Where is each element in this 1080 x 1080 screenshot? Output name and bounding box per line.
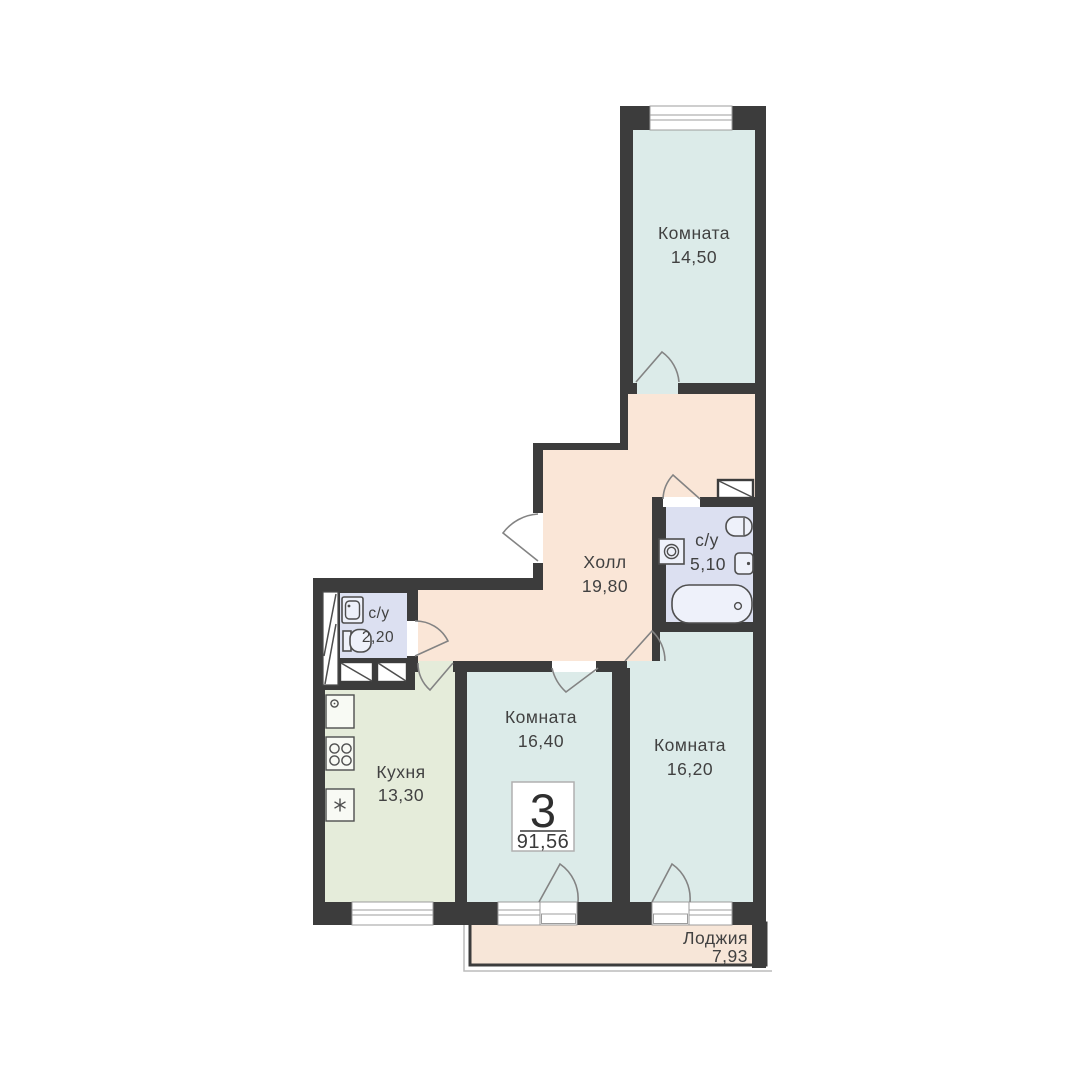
bathroom-5-10-door-gap <box>663 497 700 507</box>
entrance-door-gap <box>533 513 543 563</box>
duct-shaft-strip-icon <box>323 592 338 685</box>
bathroom-2-20-area: 2,20 <box>362 629 394 646</box>
kitchen-sink-icon <box>326 695 354 728</box>
badge-room-count: 3 <box>530 784 556 837</box>
loggia-area: 7,93 <box>712 946 748 966</box>
loggia-name: Лоджия <box>683 928 748 948</box>
balcony-door-threshold <box>652 902 689 925</box>
hall-name: Холл <box>583 552 626 572</box>
vent-shaft-icon <box>340 662 373 682</box>
kitchen-area: 13,30 <box>378 785 424 805</box>
room-14-50-area: 14,50 <box>671 247 717 267</box>
vent-shaft-icon <box>718 480 753 498</box>
window <box>650 106 732 130</box>
vent-shaft-icon <box>377 662 407 682</box>
toilet-icon <box>726 517 752 536</box>
area-badge: 3 91,56 <box>512 782 574 853</box>
hall-area: 19,80 <box>582 576 628 596</box>
room-14-50-door-gap <box>637 383 678 394</box>
room-16-20-name: Комната <box>654 735 726 755</box>
room-16-20-door-gap <box>627 661 660 668</box>
sink-icon <box>342 597 363 623</box>
room-16-40-name: Комната <box>505 707 577 727</box>
room-16-40-door-gap <box>552 661 596 672</box>
badge-total-area: 91,56 <box>517 831 570 853</box>
door-arc-entrance <box>503 514 538 561</box>
room-16-20-area: 16,20 <box>667 759 713 779</box>
bathroom-5-10-area: 5,10 <box>690 554 726 574</box>
sink-icon <box>735 553 753 574</box>
balcony-door-threshold <box>540 902 577 925</box>
floorplan-canvas: 3 91,56 Комната 14,50 Холл 19,80 с/у 5,1… <box>0 0 1080 1080</box>
room-16-40-area: 16,40 <box>518 731 564 751</box>
floorplan-svg: 3 91,56 Комната 14,50 Холл 19,80 с/у 5,1… <box>0 0 1080 1080</box>
bathroom-2-20-door-gap <box>407 621 418 656</box>
bathroom-2-20-name: с/у <box>368 605 389 622</box>
window <box>498 902 540 925</box>
bathtub-icon <box>672 585 752 623</box>
room-14-50-name: Комната <box>658 223 730 243</box>
fridge-icon <box>326 789 354 821</box>
window <box>689 902 732 925</box>
stove-icon <box>326 737 354 770</box>
window <box>352 902 433 925</box>
kitchen-name: Кухня <box>376 762 425 782</box>
washing-machine-icon <box>659 539 684 564</box>
bathroom-5-10-name: с/у <box>695 530 719 550</box>
